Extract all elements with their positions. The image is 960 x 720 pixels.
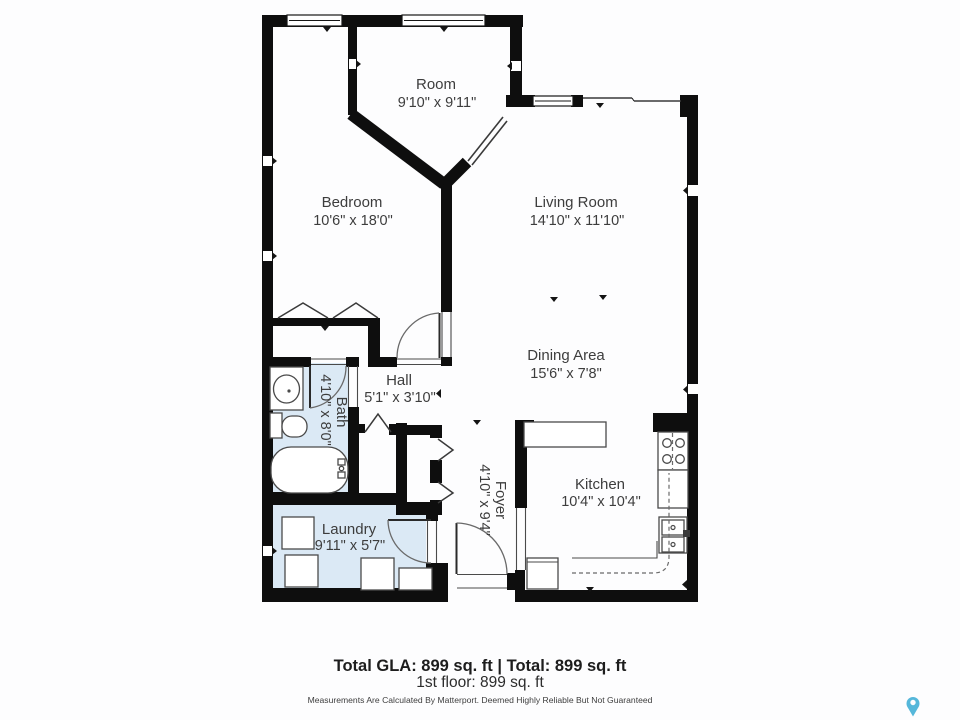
bedroom-closet-door [278, 303, 328, 318]
label-kitchen: Kitchen [575, 476, 625, 493]
dims-laundry: 9'11" x 5'7" [315, 538, 385, 554]
tub-faucet [338, 459, 345, 465]
dims-foyer: 4'10" x 9'4" [476, 464, 492, 535]
burner [676, 455, 685, 464]
label-laundry: Laundry [322, 521, 377, 538]
dishwasher [527, 558, 558, 589]
laundry-cabinet [399, 568, 432, 590]
washer [282, 517, 314, 549]
label-foyer: Foyer [492, 481, 509, 519]
foyer-closet-door [438, 482, 453, 503]
burner [663, 455, 672, 464]
kitchen-island [524, 422, 606, 447]
angled-glass-partition [468, 117, 507, 165]
dims-hall: 5'1" x 3'10" [364, 390, 435, 406]
disclaimer-text: Measurements Are Calculated By Matterpor… [308, 695, 653, 705]
toilet-tank [270, 413, 282, 438]
floor-plan-drawing: Room 9'10" x 9'11" Bedroom 10'6" x 18'0"… [0, 0, 960, 720]
counter-edge [572, 541, 657, 558]
sink-basin [274, 375, 300, 403]
dims-dining-area: 15'6" x 7'8" [530, 366, 601, 382]
dims-room: 9'10" x 9'11" [398, 95, 476, 111]
label-bedroom: Bedroom [322, 194, 383, 211]
counter [658, 470, 688, 508]
dryer [285, 555, 318, 587]
room-labels: Room 9'10" x 9'11" Bedroom 10'6" x 18'0"… [313, 76, 641, 554]
sink-faucet [683, 530, 690, 537]
toilet-bowl [282, 416, 307, 437]
label-bath: Bath [333, 397, 350, 428]
windows [287, 15, 681, 106]
dims-bath: 4'10" x 8'0" [317, 374, 333, 445]
bedroom-closet-door [333, 303, 378, 318]
label-living-room: Living Room [534, 194, 617, 211]
dims-kitchen: 10'4" x 10'4" [561, 494, 641, 510]
label-dining-area: Dining Area [527, 347, 605, 364]
label-room: Room [416, 76, 456, 93]
dims-living-room: 14'10" x 11'10" [530, 213, 625, 229]
footer: Total GLA: 899 sq. ft | Total: 899 sq. f… [308, 657, 653, 705]
floor-area-text: 1st floor: 899 sq. ft [416, 674, 544, 691]
burner [663, 439, 672, 448]
label-hall: Hall [386, 372, 412, 389]
bathtub [271, 447, 348, 493]
map-pin-icon [907, 697, 920, 717]
dims-bedroom: 10'6" x 18'0" [313, 213, 393, 229]
floor-plan-page: Room 9'10" x 9'11" Bedroom 10'6" x 18'0"… [0, 0, 960, 720]
foyer-closet-door [438, 439, 453, 461]
laundry-cabinet [361, 558, 394, 590]
hall-closet-door [365, 414, 391, 432]
total-area-text: Total GLA: 899 sq. ft | Total: 899 sq. f… [334, 657, 627, 675]
burner [676, 439, 685, 448]
